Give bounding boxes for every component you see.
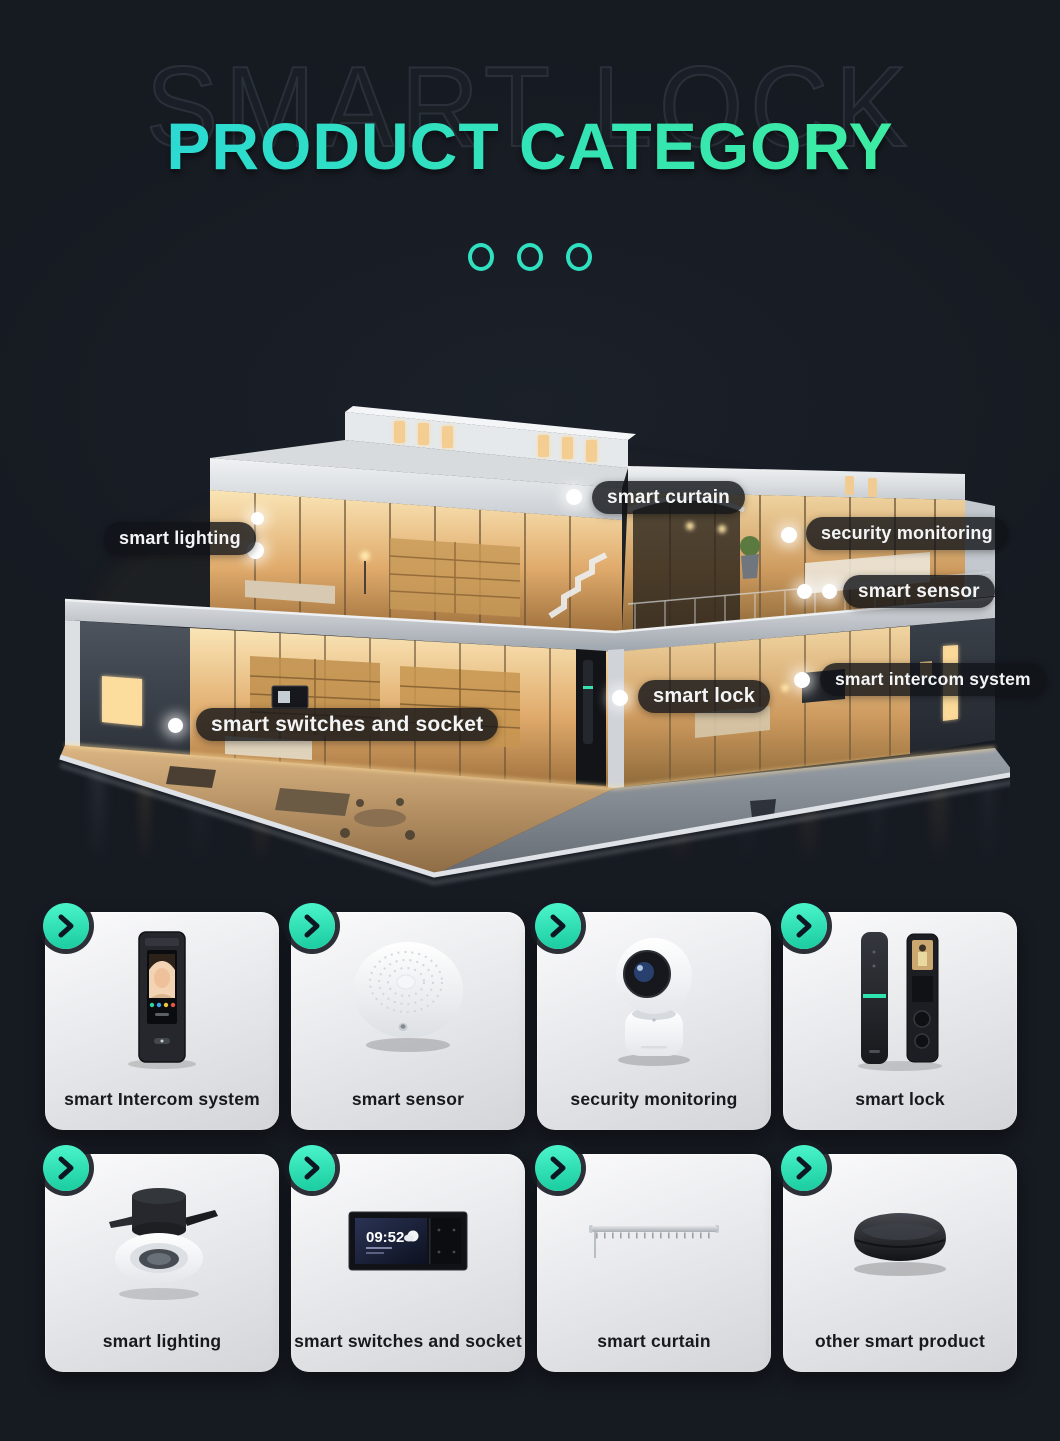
card-label: other smart product <box>783 1331 1017 1352</box>
card-other-smart-product[interactable]: other smart product <box>783 1154 1017 1372</box>
house-label-smart-intercom-system: smart intercom system <box>820 663 1046 696</box>
pager-dot <box>517 243 543 271</box>
card-smart-intercom-system[interactable]: smart Intercom system <box>45 912 279 1130</box>
pager-dot <box>468 243 494 271</box>
chevron-right-icon <box>547 912 569 940</box>
card-label: smart sensor <box>291 1089 525 1110</box>
light-point-icon <box>612 690 628 706</box>
chevron-right-icon <box>793 1154 815 1182</box>
card-smart-lighting[interactable]: smart lighting <box>45 1154 279 1372</box>
camera-device-image <box>579 924 729 1074</box>
light-point-icon <box>822 584 837 599</box>
switch-panel-image: 09:52 <box>333 1166 483 1316</box>
card-label: security monitoring <box>537 1089 771 1110</box>
card-label: smart curtain <box>537 1331 771 1352</box>
card-arrow-button[interactable] <box>535 903 581 949</box>
card-arrow-button[interactable] <box>289 1145 335 1191</box>
house-label-smart-lighting: smart lighting <box>104 522 256 555</box>
pager-dot <box>566 243 592 271</box>
card-label: smart lock <box>783 1089 1017 1110</box>
page-title: PRODUCT CATEGORY <box>0 108 1060 184</box>
card-arrow-button[interactable] <box>781 903 827 949</box>
chevron-right-icon <box>301 1154 323 1182</box>
door-lock-image <box>825 924 975 1074</box>
chevron-right-icon <box>55 912 77 940</box>
card-arrow-button[interactable] <box>43 1145 89 1191</box>
card-smart-switches-and-socket[interactable]: 09:52 smart switches and socket <box>291 1154 525 1372</box>
house-label-security-monitoring: security monitoring <box>806 517 1008 550</box>
curtain-rail-image <box>579 1166 729 1316</box>
light-point-icon <box>781 527 797 543</box>
light-point-icon <box>168 718 183 733</box>
chevron-right-icon <box>55 1154 77 1182</box>
light-point-icon <box>251 512 264 525</box>
house-label-smart-curtain: smart curtain <box>592 481 745 514</box>
chevron-right-icon <box>301 912 323 940</box>
smart-home-house-render <box>50 388 1010 888</box>
card-label: smart Intercom system <box>45 1089 279 1110</box>
card-arrow-button[interactable] <box>43 903 89 949</box>
chevron-right-icon <box>547 1154 569 1182</box>
pager-dots <box>0 243 1060 271</box>
card-label: smart lighting <box>45 1331 279 1352</box>
category-cards-grid: smart Intercom system smart sensor <box>45 912 1017 1372</box>
house-label-smart-lock: smart lock <box>638 680 770 713</box>
house-label-smart-sensor: smart sensor <box>843 575 995 608</box>
smart-hub-image <box>825 1166 975 1316</box>
card-arrow-button[interactable] <box>289 903 335 949</box>
intercom-device-image <box>87 924 237 1074</box>
card-arrow-button[interactable] <box>781 1145 827 1191</box>
card-arrow-button[interactable] <box>535 1145 581 1191</box>
card-smart-sensor[interactable]: smart sensor <box>291 912 525 1130</box>
page-background: SMART LOCK PRODUCT CATEGORY <box>0 0 1060 1441</box>
house-label-smart-switches-and-socket: smart switches and socket <box>196 708 498 741</box>
card-label: smart switches and socket <box>291 1331 525 1352</box>
card-smart-curtain[interactable]: smart curtain <box>537 1154 771 1372</box>
card-smart-lock[interactable]: smart lock <box>783 912 1017 1130</box>
downlight-image <box>87 1166 237 1316</box>
light-point-icon <box>794 672 810 688</box>
panel-clock-text: 09:52 <box>366 1229 404 1246</box>
light-point-icon <box>566 489 582 505</box>
card-security-monitoring[interactable]: security monitoring <box>537 912 771 1130</box>
sensor-device-image <box>333 924 483 1074</box>
light-point-icon <box>797 584 812 599</box>
chevron-right-icon <box>793 912 815 940</box>
